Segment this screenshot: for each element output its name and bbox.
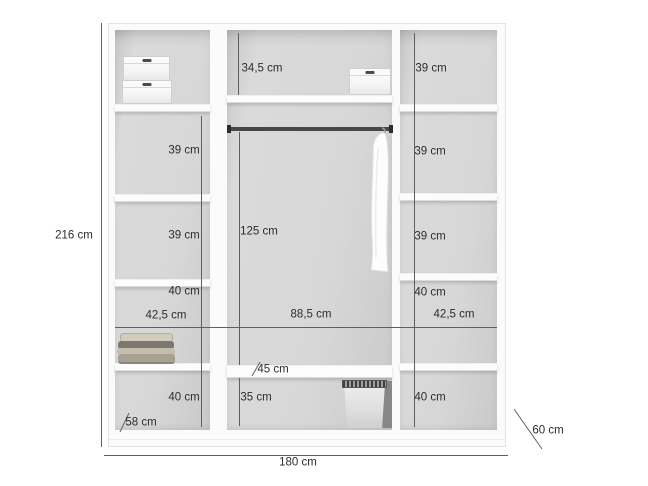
left-shelf-4 xyxy=(115,363,210,371)
middle-top-shelf xyxy=(227,95,392,103)
box-handle xyxy=(143,83,152,86)
storage-box-middle xyxy=(349,68,391,95)
clothes-rail-end-cap xyxy=(227,125,231,133)
storage-box-bottom xyxy=(122,80,172,104)
dim-shelf-depth: 45 cm xyxy=(257,364,288,376)
box-handle xyxy=(142,59,151,62)
dim-hanging-height: 125 cm xyxy=(240,226,278,238)
interior-width-line xyxy=(115,327,497,328)
storage-box-top xyxy=(123,56,170,81)
hanging-garment-icon xyxy=(366,126,396,276)
plinth-seam xyxy=(109,439,505,440)
folded-item xyxy=(118,354,175,364)
middle-top-height-line xyxy=(238,33,239,95)
dim-left-shelf2-height: 39 cm xyxy=(168,145,199,157)
dim-interior-depth: 58 cm xyxy=(125,417,156,429)
box-handle xyxy=(366,71,375,74)
middle-bottom-shelf xyxy=(227,365,392,378)
dim-right-shelf4-height: 40 cm xyxy=(414,287,445,299)
dim-total-width: 180 cm xyxy=(279,457,317,469)
dim-left-shelf5-height: 40 cm xyxy=(168,392,199,404)
dim-middle-width: 88,5 cm xyxy=(291,309,332,321)
dim-middle-top-height: 34,5 cm xyxy=(242,63,283,75)
left-shelf-1 xyxy=(115,104,210,112)
dim-right-width: 42,5 cm xyxy=(434,309,475,321)
dim-middle-bottom-height: 35 cm xyxy=(240,392,271,404)
dim-left-shelf3-height: 39 cm xyxy=(168,230,199,242)
wardrobe-dimension-diagram: 216 cm 34,5 cm 39 cm 39 cm 39 cm 39 cm 1… xyxy=(0,0,648,486)
laundry-basket-rim xyxy=(342,380,387,388)
left-column-height-line xyxy=(201,116,202,427)
dim-total-height: 216 cm xyxy=(55,230,93,242)
dim-right-shelf2-height: 39 cm xyxy=(414,146,445,158)
dim-right-shelf1-height: 39 cm xyxy=(415,63,446,75)
left-shelf-2 xyxy=(115,194,210,202)
dim-right-shelf3-height: 39 cm xyxy=(414,231,445,243)
dim-total-depth: 60 cm xyxy=(532,425,563,437)
dim-right-shelf5-height: 40 cm xyxy=(414,392,445,404)
hanging-height-line xyxy=(239,132,240,365)
folded-clothes xyxy=(117,333,176,364)
dim-left-shelf4-height: 40 cm xyxy=(168,286,199,298)
dim-left-width: 42,5 cm xyxy=(146,310,187,322)
laundry-basket xyxy=(343,388,386,428)
height-dimension-line xyxy=(101,23,102,447)
